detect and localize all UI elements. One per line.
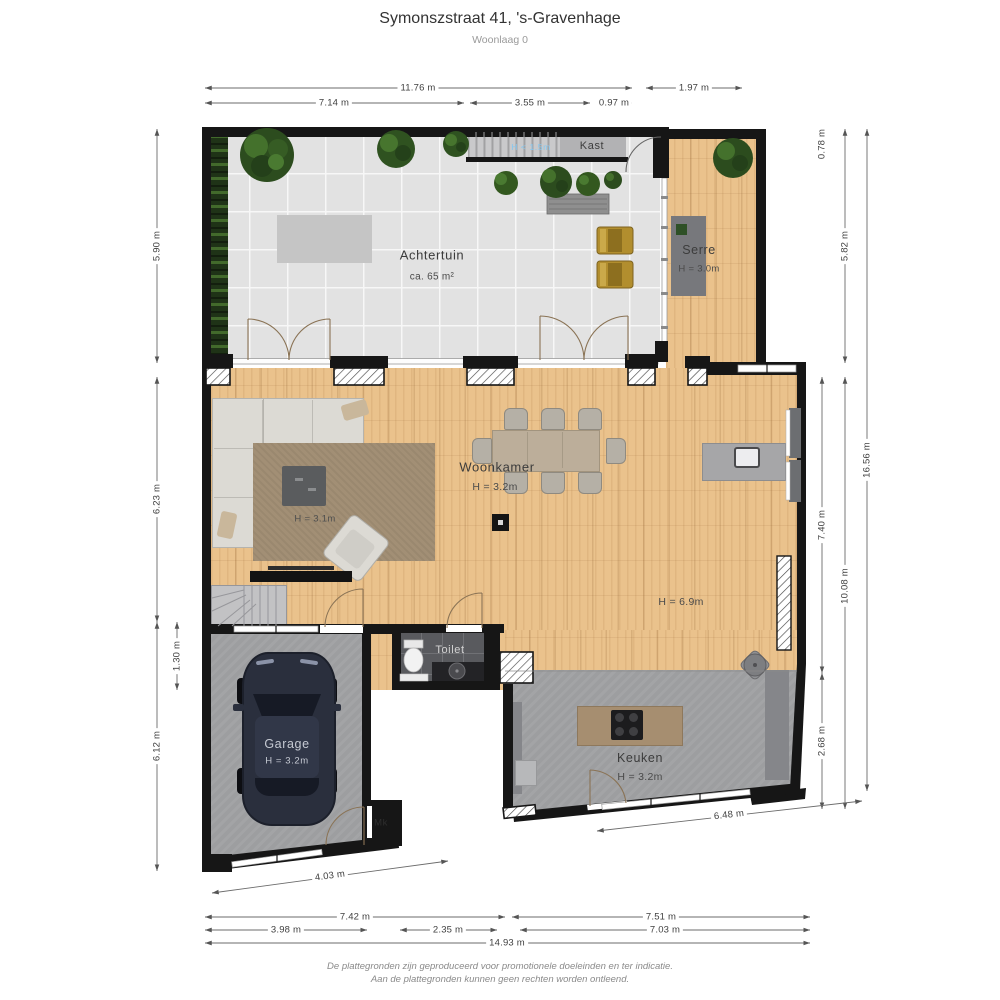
plant-icon [576,172,600,196]
toilet-label: Toilet [435,644,464,656]
dim-label: 5.82 m [840,228,851,264]
dim-label: 7.14 m [316,98,352,109]
dim-label: 11.76 m [397,83,438,94]
kast-label: Kast [580,140,604,152]
garage-height-label: H = 3.2m [265,756,309,767]
dim-label: 5.90 m [152,228,163,264]
dim-label: 6.23 m [152,481,163,517]
dim-label: 0.78 m [817,126,828,162]
plant-icon [540,166,572,198]
dim-label: 6.12 m [152,728,163,764]
plant-icon [713,138,753,178]
plant-icon [240,128,294,182]
dim-label: 2.68 m [817,723,828,759]
dim-label: 14.93 m [486,938,528,949]
void-height-label: H = 6.9m [658,596,703,608]
dim-label: 7.51 m [643,912,679,923]
dim-label: 3.55 m [512,98,548,109]
footer-disclaimer-line2: Aan de plattegronden kunnen geen rechten… [0,974,1000,985]
dim-label: 0.97 m [596,98,632,109]
footer-disclaimer-line1: De plattegronden zijn geproduceerd voor … [0,961,1000,972]
dim-label: 7.42 m [337,912,373,923]
dim-label: 7.03 m [647,925,683,936]
plant-icon [377,130,415,168]
serre-label: Serre [682,243,716,257]
achtertuin-area-label: ca. 65 m² [410,272,454,283]
sofa-height-label: H = 3.1m [294,514,335,525]
kast-clearance-label: H < 1.5m [511,142,551,152]
dim-label: 2.35 m [430,925,466,936]
garden-chairs [597,227,633,288]
achtertuin-label: Achtertuin [400,248,465,263]
serre-height-label: H = 3.0m [678,264,719,275]
dim-label: 1.30 m [172,638,183,674]
garage-label: Garage [264,737,309,751]
keuken-height-label: H = 3.2m [617,771,662,783]
plant-icon [604,171,622,189]
kitchen-basin [505,649,797,680]
dim-label: 10.08 m [840,565,851,607]
dim-label: 3.98 m [268,925,304,936]
plant-icon [494,171,518,195]
dim-label: 1.97 m [676,83,712,94]
floorplan-page: Symonszstraat 41, 's-Gravenhage Woonlaag… [0,0,1000,1000]
woonkamer-label: Woonkamer [459,460,534,475]
keuken-label: Keuken [617,751,663,765]
woonkamer-height-label: H = 3.2m [472,481,517,493]
plan-linework [0,0,1000,1000]
meterkast-label: Mk [374,818,388,829]
dim-label: 16.56 m [862,439,873,481]
plant-icon [443,131,469,157]
dim-label: 7.40 m [817,507,828,543]
